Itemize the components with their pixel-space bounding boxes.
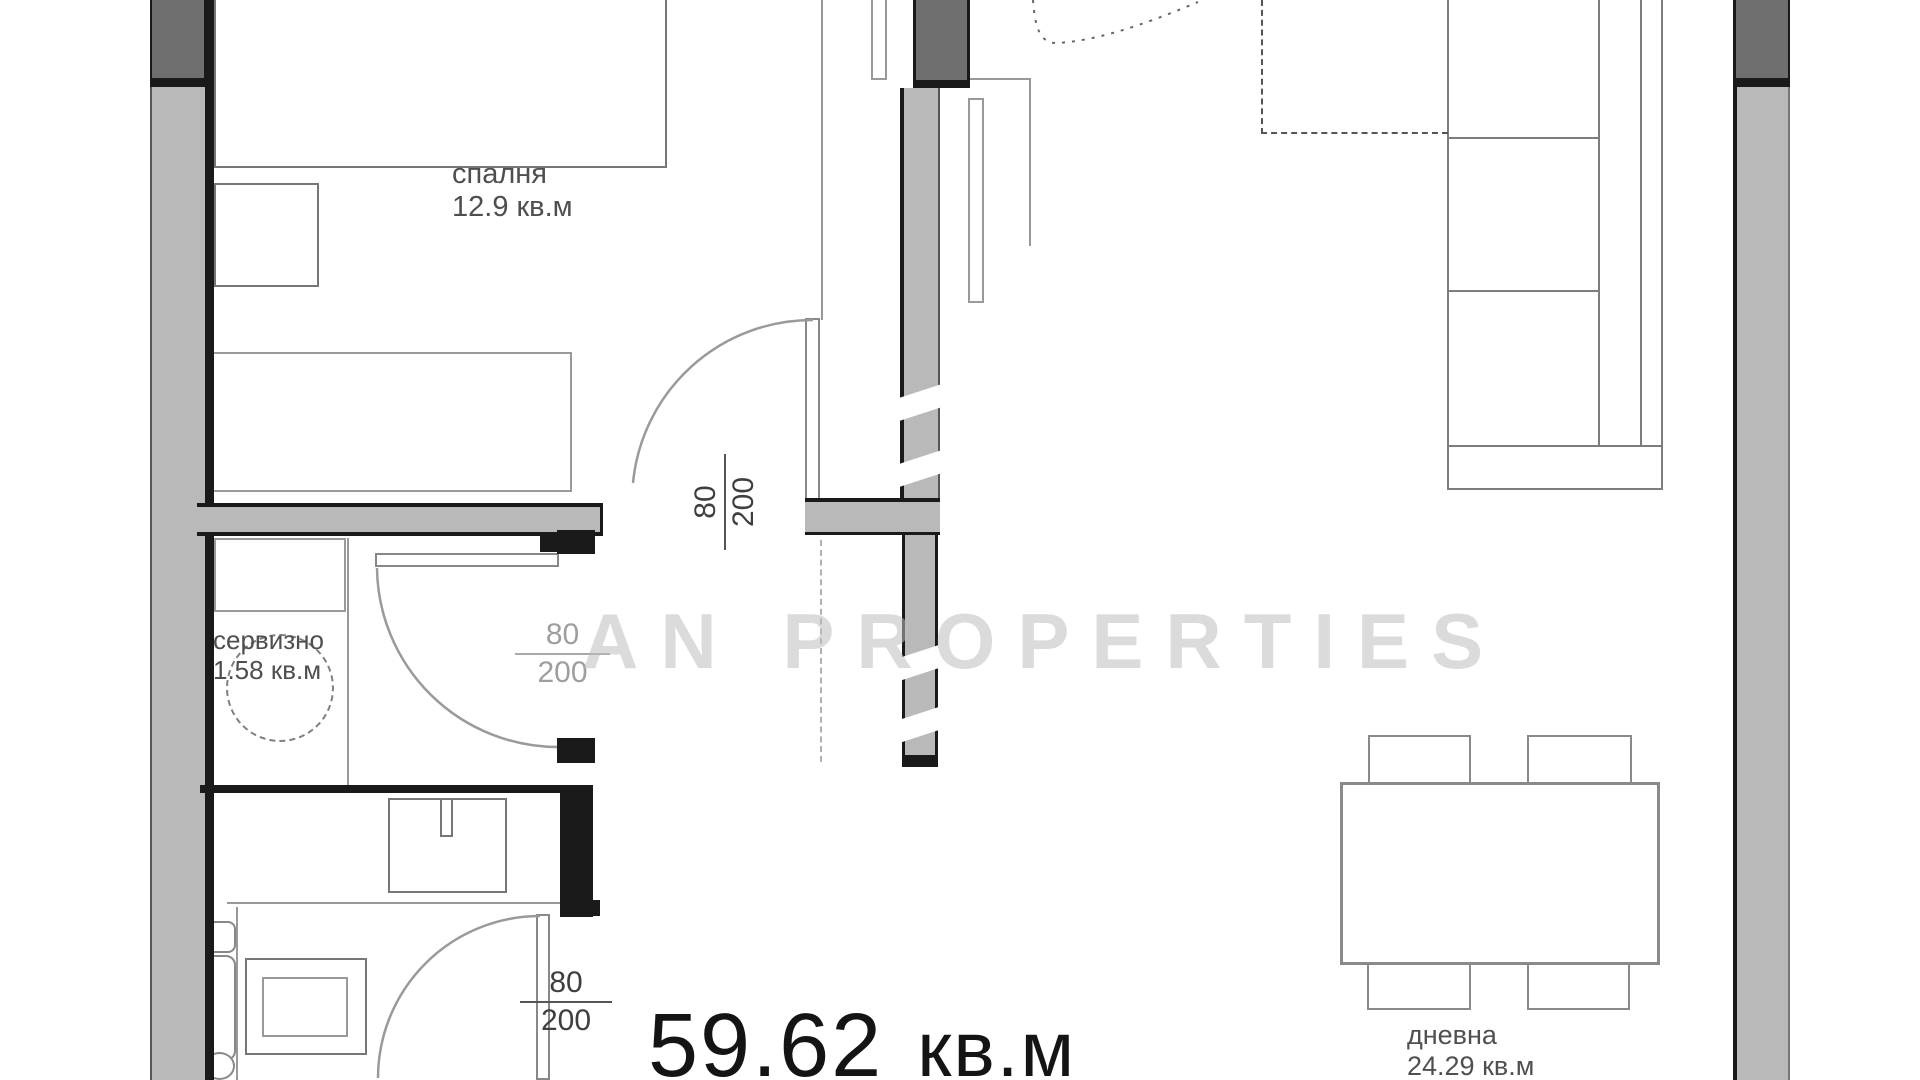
- bathroom-door-arc: [378, 916, 540, 1078]
- bedroom-wall-band: [197, 503, 603, 536]
- left-wall-divider: [150, 78, 206, 87]
- left-wall-inner-edge: [205, 0, 214, 1080]
- right-wall: [1733, 87, 1790, 1080]
- service-area: 1.58 кв.м: [213, 656, 324, 686]
- bathroom-top-wall: [200, 785, 568, 793]
- lobby-door-height: 200: [537, 656, 587, 689]
- bedroom-label: спалня 12.9 кв.м: [452, 158, 573, 225]
- bathroom-door-dimension: 80 200: [520, 968, 612, 1036]
- hall-corner-wall: [805, 498, 940, 535]
- hall-wall-upper: [900, 88, 940, 506]
- service-label: сервизно 1.58 кв.м: [213, 626, 324, 686]
- left-wall-top-block: [150, 0, 206, 78]
- bathroom-door-height: 200: [541, 1004, 591, 1037]
- right-wall-divider: [1733, 78, 1790, 87]
- lobby-door-jamb-top: [557, 530, 595, 554]
- floor-plan: спалня 12.9 кв.м 80 200 сервизно 1.58 кв…: [0, 0, 1920, 1080]
- total-area-value: 59.62: [648, 995, 883, 1080]
- hall-wall-top-block: [913, 0, 970, 80]
- lobby-door-jamb-bottom: [557, 738, 595, 763]
- watermark: AN PROPERTIES: [582, 596, 1505, 687]
- bedroom-door-height: 200: [727, 477, 760, 527]
- lobby-door-width: 80: [546, 618, 579, 651]
- hall-wall-divider: [913, 80, 970, 88]
- total-area-unit: кв.м: [917, 1004, 1076, 1080]
- right-wall-top-block: [1733, 0, 1790, 78]
- bedroom-name: спалня: [452, 158, 573, 191]
- dimension-line: [724, 454, 726, 550]
- bedroom-door-width: 80: [689, 485, 722, 518]
- hall-wall-end-cap: [902, 755, 938, 767]
- living-name: дневна: [1407, 1020, 1534, 1051]
- entry-door-dashed-arc: [1033, 0, 1198, 43]
- service-name: сервизно: [213, 626, 324, 656]
- bedroom-area: 12.9 кв.м: [452, 191, 573, 224]
- bathroom-door-width: 80: [549, 966, 582, 999]
- left-wall: [150, 87, 206, 1080]
- bathroom-door-jamb: [560, 900, 600, 916]
- total-area: 59.62 кв.м: [648, 995, 1076, 1080]
- door-arcs-layer: [0, 0, 1920, 1080]
- dimension-line: [520, 1001, 612, 1003]
- bathroom-right-wall: [560, 785, 593, 917]
- living-label: дневна 24.29 кв.м: [1407, 1020, 1534, 1080]
- bedroom-door-dimension: 80 200: [691, 442, 759, 562]
- living-area: 24.29 кв.м: [1407, 1051, 1534, 1080]
